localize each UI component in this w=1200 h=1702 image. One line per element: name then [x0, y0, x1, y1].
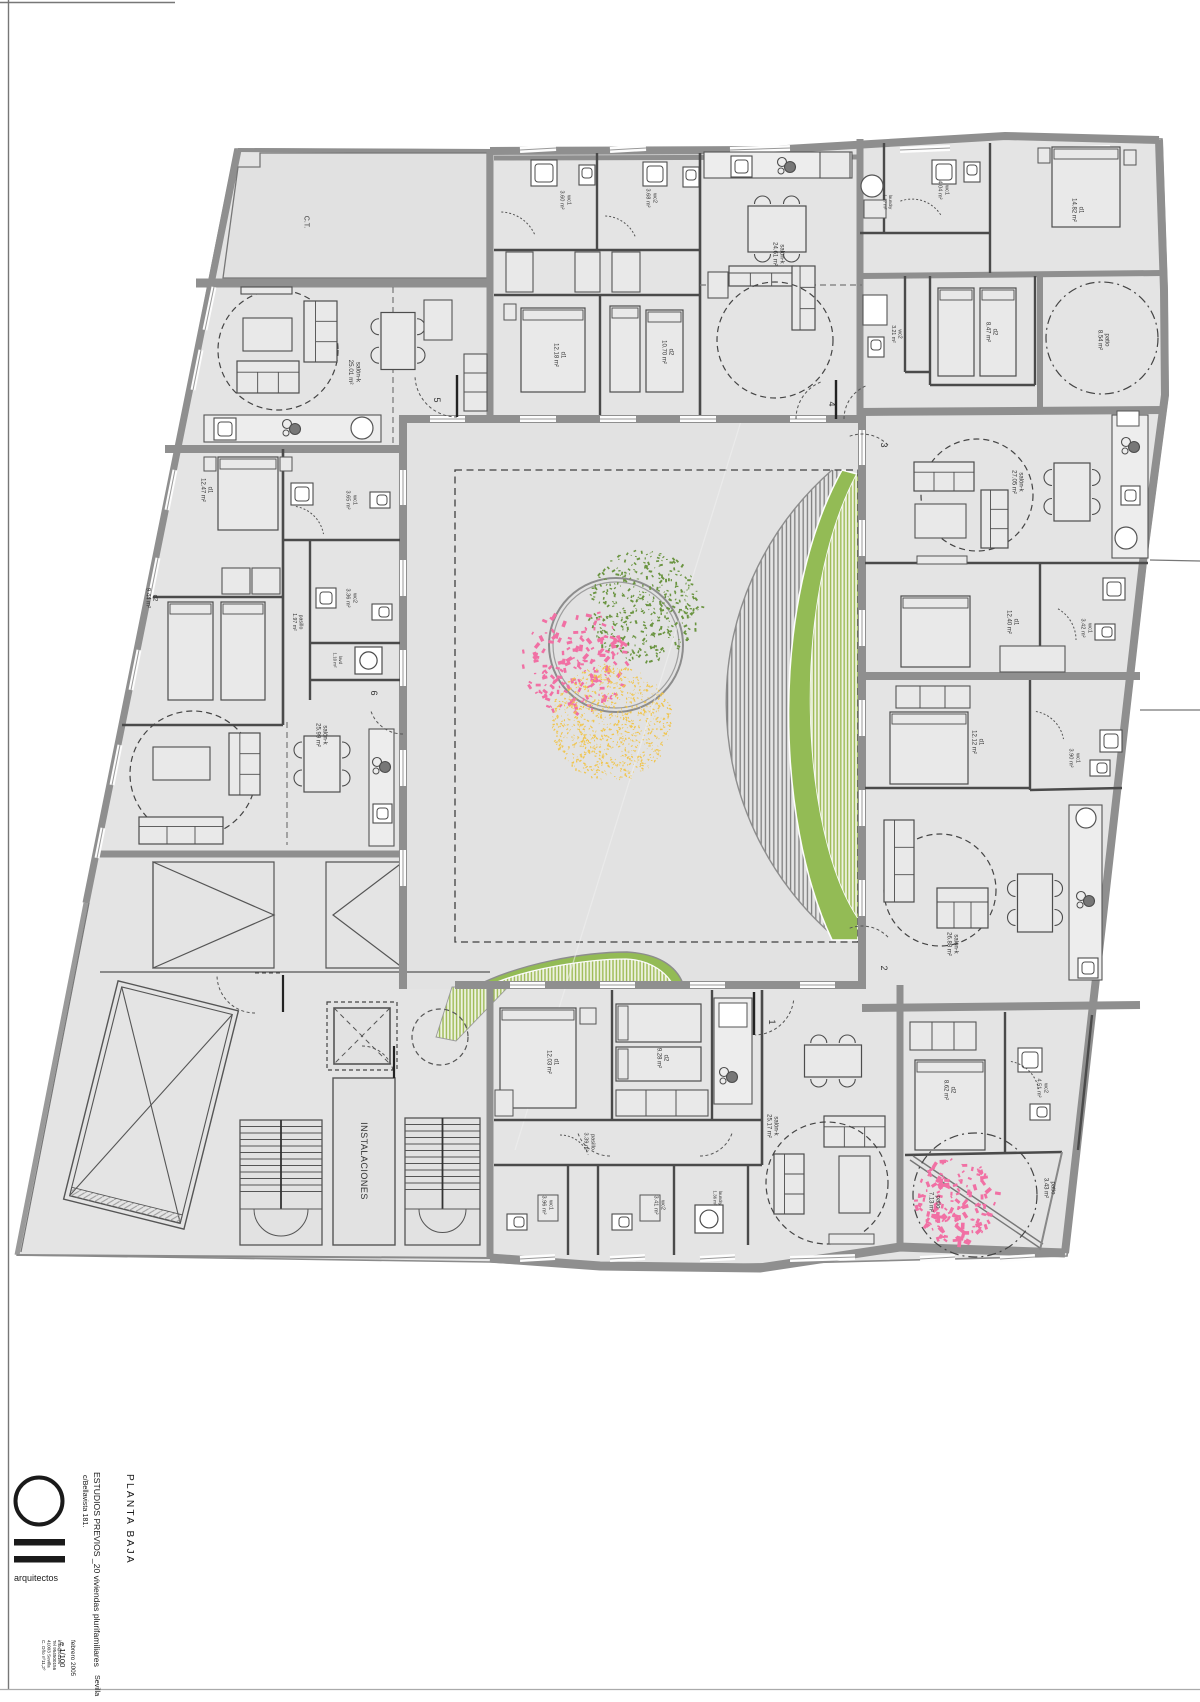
svg-text:ESTUDIOS PREVIOS _20 viviendas: ESTUDIOS PREVIOS _20 viviendas plurifami…	[92, 1472, 102, 1667]
svg-text:7.13 m²: 7.13 m²	[927, 1192, 933, 1212]
svg-text:d2: d2	[662, 1055, 668, 1062]
svg-text:4.04 m²: 4.04 m²	[937, 181, 943, 200]
svg-text:pasillo: pasillo	[297, 615, 303, 630]
svg-text:3.60 m²: 3.60 m²	[559, 191, 565, 210]
svg-text:14.82 m²: 14.82 m²	[1070, 198, 1076, 222]
svg-text:3.21 m²: 3.21 m²	[890, 325, 896, 343]
svg-text:1.10 m²: 1.10 m²	[333, 653, 338, 668]
svg-text:3.90 m²: 3.90 m²	[1068, 749, 1074, 768]
svg-text:9.28 m²: 9.28 m²	[655, 1048, 661, 1068]
svg-text:d1: d1	[1012, 619, 1018, 626]
svg-text:2: 2	[879, 965, 889, 970]
svg-text:arquitectos: arquitectos	[14, 1573, 59, 1583]
svg-text:patio: patio	[934, 1195, 940, 1209]
svg-text:10.70 m²: 10.70 m²	[660, 340, 666, 364]
svg-text:d1: d1	[552, 1059, 558, 1066]
svg-text:24.61 m²: 24.61 m²	[771, 242, 777, 266]
svg-text:6: 6	[369, 690, 379, 695]
svg-text:info@o11es: info@o11es	[57, 1640, 62, 1665]
svg-text:8.54 m²: 8.54 m²	[1096, 330, 1102, 350]
svg-text:Sevilla: Sevilla	[93, 1675, 102, 1696]
svg-text:9.44 m²: 9.44 m²	[144, 588, 150, 608]
svg-text:5: 5	[432, 397, 442, 402]
svg-text:3: 3	[879, 442, 889, 447]
svg-text:3.36 m²: 3.36 m²	[345, 589, 351, 608]
svg-text:4: 4	[827, 401, 837, 406]
svg-text:4.51 m²: 4.51 m²	[1036, 1079, 1042, 1098]
svg-text:12.47 m²: 12.47 m²	[199, 478, 205, 502]
svg-text:d1: d1	[977, 739, 983, 746]
svg-text:d2: d2	[151, 595, 157, 602]
svg-text:patio: patio	[1103, 333, 1109, 347]
svg-text:wc2: wc2	[651, 192, 657, 203]
svg-text:1.97 m²: 1.97 m²	[291, 613, 297, 631]
svg-text:wc2: wc2	[659, 1199, 665, 1210]
svg-text:d2: d2	[949, 1087, 955, 1094]
svg-text:C. Oño nº11,2º: C. Oño nº11,2º	[41, 1640, 46, 1671]
svg-text:wc1: wc1	[351, 494, 357, 505]
svg-text:laundry: laundry	[718, 1191, 723, 1206]
svg-text:wc1: wc1	[547, 1199, 553, 1210]
svg-text:febrero 2005: febrero 2005	[69, 1640, 76, 1677]
svg-text:c/Bellavista 181.: c/Bellavista 181.	[81, 1475, 90, 1527]
svg-text:25.17 m²: 25.17 m²	[765, 1114, 771, 1138]
svg-text:41003 Sevilla: 41003 Sevilla	[46, 1640, 51, 1668]
svg-text:d1: d1	[559, 352, 565, 359]
svg-text:d2: d2	[991, 329, 997, 336]
svg-text:26.88 m²: 26.88 m²	[945, 932, 951, 956]
svg-text:d1: d1	[206, 487, 212, 494]
svg-text:d1: d1	[1077, 207, 1083, 214]
svg-text:wc2: wc2	[1042, 1082, 1048, 1093]
svg-text:wc1: wc1	[565, 194, 571, 205]
svg-text:12.12 m²: 12.12 m²	[970, 730, 976, 754]
svg-text:INSTALACIONES: INSTALACIONES	[359, 1122, 369, 1200]
svg-text:wc1: wc1	[1074, 752, 1080, 763]
svg-text:d2: d2	[667, 349, 673, 356]
svg-text:salón-k: salón-k	[952, 934, 958, 954]
svg-text:wc2: wc2	[351, 592, 357, 603]
svg-text:patio: patio	[1049, 1181, 1055, 1195]
svg-text:salón-k: salón-k	[778, 244, 784, 264]
svg-text:1.17 m²: 1.17 m²	[883, 195, 888, 210]
svg-text:12.03 m²: 12.03 m²	[545, 1050, 551, 1074]
svg-text:1.36 m²: 1.36 m²	[713, 1191, 718, 1206]
svg-text:PLANTA BAJA: PLANTA BAJA	[124, 1474, 135, 1565]
svg-text:3.42 m²: 3.42 m²	[1080, 619, 1086, 638]
svg-text:salón-k: salón-k	[321, 725, 327, 745]
svg-text:8.62 m²: 8.62 m²	[942, 1080, 948, 1100]
svg-text:3.41 m²: 3.41 m²	[653, 1196, 659, 1215]
svg-text:laundry: laundry	[888, 195, 893, 210]
svg-text:12.40 m²: 12.40 m²	[1005, 610, 1011, 634]
svg-text:3.96 m²: 3.96 m²	[541, 1196, 547, 1215]
svg-text:wc1: wc1	[943, 184, 949, 195]
svg-text:12.18 m²: 12.18 m²	[552, 343, 558, 367]
svg-text:salón-k: salón-k	[1017, 472, 1023, 492]
svg-text:27.05 m²: 27.05 m²	[1010, 470, 1016, 494]
svg-text:Tel 954500156: Tel 954500156	[52, 1640, 57, 1671]
svg-text:pasillo: pasillo	[589, 1134, 595, 1150]
svg-text:3.43 m²: 3.43 m²	[1042, 1178, 1048, 1198]
svg-text:lavd: lavd	[338, 656, 343, 665]
svg-text:25.01 m²: 25.01 m²	[347, 360, 354, 385]
svg-text:25.99 m²: 25.99 m²	[314, 723, 320, 747]
svg-text:3.68 m²: 3.68 m²	[645, 189, 651, 208]
svg-text:salón-k: salón-k	[772, 1116, 778, 1136]
svg-text:8.47 m²: 8.47 m²	[984, 322, 990, 342]
svg-text:C.T.: C.T.	[303, 216, 310, 229]
svg-text:wc2: wc2	[896, 329, 902, 338]
svg-text:3.65 m²: 3.65 m²	[345, 491, 351, 510]
svg-text:3.39 m²: 3.39 m²	[583, 1133, 589, 1152]
svg-text:salón-k: salón-k	[355, 362, 362, 383]
svg-text:wc1: wc1	[1086, 622, 1092, 633]
svg-text:1: 1	[767, 1019, 777, 1024]
